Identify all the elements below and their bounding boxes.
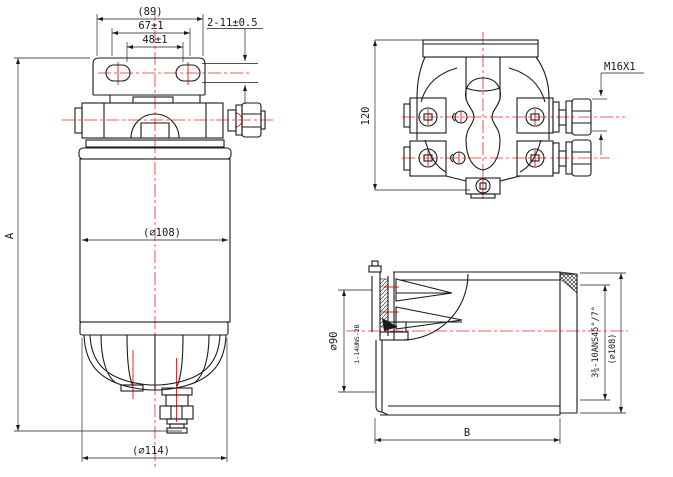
dim-seal-diameter-label: ∅90 bbox=[328, 332, 340, 351]
dim-port-thread-label: M16X1 bbox=[604, 61, 636, 73]
dim-slots: 2-11±0.5 bbox=[202, 17, 263, 104]
dim-center-thread-label: 1-14UNS-2B bbox=[353, 324, 361, 363]
dim-length: B bbox=[375, 418, 560, 444]
front-view: (89) 67±1 48±1 2-11±0.5 (∅10 bbox=[4, 6, 274, 468]
side-baffles bbox=[396, 274, 468, 340]
filter-head bbox=[75, 95, 265, 159]
dim-hole-span-label: 67±1 bbox=[138, 20, 163, 32]
dim-overall-width-label: (89) bbox=[137, 6, 162, 18]
dim-seal-diameter: ∅90 bbox=[328, 290, 375, 392]
dim-port-thread: M16X1 bbox=[592, 61, 644, 155]
dim-bowl-diameter-label: (∅114) bbox=[132, 445, 170, 457]
dim-shell-diameter: (∅108) bbox=[580, 273, 626, 413]
dim-length-label: B bbox=[464, 427, 470, 439]
dim-shell-diameter-label: (∅108) bbox=[608, 334, 618, 365]
element-dome-arc bbox=[402, 274, 468, 340]
technical-drawing: (89) 67±1 48±1 2-11±0.5 (∅10 bbox=[0, 0, 673, 477]
dim-seam-spec-label: 3¾-10ANS45°/7° bbox=[591, 306, 601, 378]
drawing-canvas: (89) 67±1 48±1 2-11±0.5 (∅10 bbox=[0, 0, 673, 477]
top-view: 120 M16X1 bbox=[360, 32, 644, 202]
dim-seam-spec: 3¾-10ANS45°/7° bbox=[580, 285, 610, 400]
top-fittings bbox=[553, 99, 591, 176]
top-bracket bbox=[423, 40, 538, 57]
dim-slots-label: 2-11±0.5 bbox=[207, 17, 258, 29]
water-bowl bbox=[80, 322, 228, 391]
dim-depth-label: 120 bbox=[360, 107, 372, 126]
side-view: ∅90 1-14UNS-2B B 3¾-10ANS45°/7° (∅108) bbox=[328, 261, 628, 444]
dim-hole-span-inner-label: 48±1 bbox=[142, 34, 167, 46]
dim-body-diameter-label: (∅108) bbox=[143, 227, 181, 239]
seam-section bbox=[560, 272, 577, 293]
dim-height-label: A bbox=[4, 232, 16, 239]
dim-body-diameter: (∅108) bbox=[82, 227, 228, 240]
shell-lip bbox=[376, 340, 382, 412]
top-port-blocks bbox=[404, 98, 553, 176]
